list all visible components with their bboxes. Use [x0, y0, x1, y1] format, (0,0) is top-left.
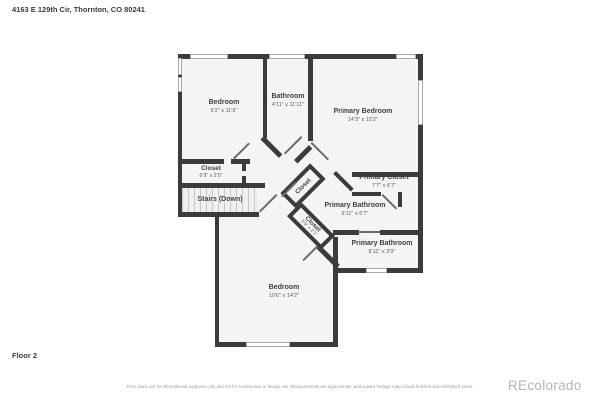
- window-marker: [190, 54, 228, 59]
- floor-label: Floor 2: [12, 351, 37, 360]
- door-leaf: [358, 231, 380, 233]
- room-dims: 10'6" x 14'2": [234, 293, 334, 300]
- wall: [178, 159, 224, 164]
- wall: [178, 183, 265, 188]
- room-label-bathroom: Bathroom 4'11" x 11'11": [248, 93, 328, 108]
- room-name: Stairs (Down): [180, 196, 260, 205]
- room-dims: 6'9" x 2'0": [176, 173, 246, 179]
- window-marker: [366, 268, 387, 273]
- room-name: Bathroom: [248, 93, 328, 102]
- wall: [215, 216, 219, 347]
- room-name: Primary Bathroom: [303, 202, 407, 211]
- room-label-primary-closet: Primary Closet 7'7" x 6'7": [338, 174, 430, 189]
- window-marker: [269, 54, 305, 59]
- room-dims: 9'11" x 6'7": [303, 211, 407, 218]
- window-marker: [246, 342, 290, 347]
- room-name: Bedroom: [234, 284, 334, 293]
- wall: [380, 230, 423, 235]
- room-label-stairs: Stairs (Down): [180, 196, 260, 205]
- room-name: Primary Bedroom: [310, 108, 416, 117]
- room-dims: 7'7" x 6'7": [338, 183, 430, 190]
- room-dims: 14'3" x 15'2": [310, 117, 416, 124]
- wall: [352, 192, 381, 196]
- wall: [231, 159, 250, 164]
- room-label-primary-bathroom-2: Primary Bathroom 8'11" x 3'9": [330, 240, 434, 255]
- disclaimer-text: Floor plans are for informational purpos…: [100, 384, 500, 389]
- room-name: Primary Bathroom: [330, 240, 434, 249]
- room-label-closet: Closet 6'9" x 2'0": [176, 165, 246, 179]
- room-dims: 8'11" x 3'9": [330, 249, 434, 256]
- room-name: Primary Closet: [338, 174, 430, 183]
- window-marker: [418, 80, 423, 125]
- floor-plan-page: 4163 E 129th Cir, Thornton, CO 80241 Clo…: [0, 0, 600, 400]
- room-label-primary-bedroom: Primary Bedroom 14'3" x 15'2": [310, 108, 416, 123]
- room-name: Closet: [176, 165, 246, 173]
- watermark: REcolorado: [508, 378, 582, 393]
- window-marker: [178, 58, 182, 75]
- room-label-bedroom-2: Bedroom 10'6" x 14'2": [234, 284, 334, 299]
- window-marker: [178, 77, 182, 92]
- address-title: 4163 E 129th Cir, Thornton, CO 80241: [12, 5, 145, 14]
- window-marker: [396, 54, 416, 59]
- room-label-primary-bathroom-1: Primary Bathroom 9'11" x 6'7": [303, 202, 407, 217]
- room-label-hall-closet-1: Closet: [294, 177, 313, 196]
- wall: [333, 230, 359, 235]
- room-dims: 9'2" x 11'9": [174, 108, 274, 115]
